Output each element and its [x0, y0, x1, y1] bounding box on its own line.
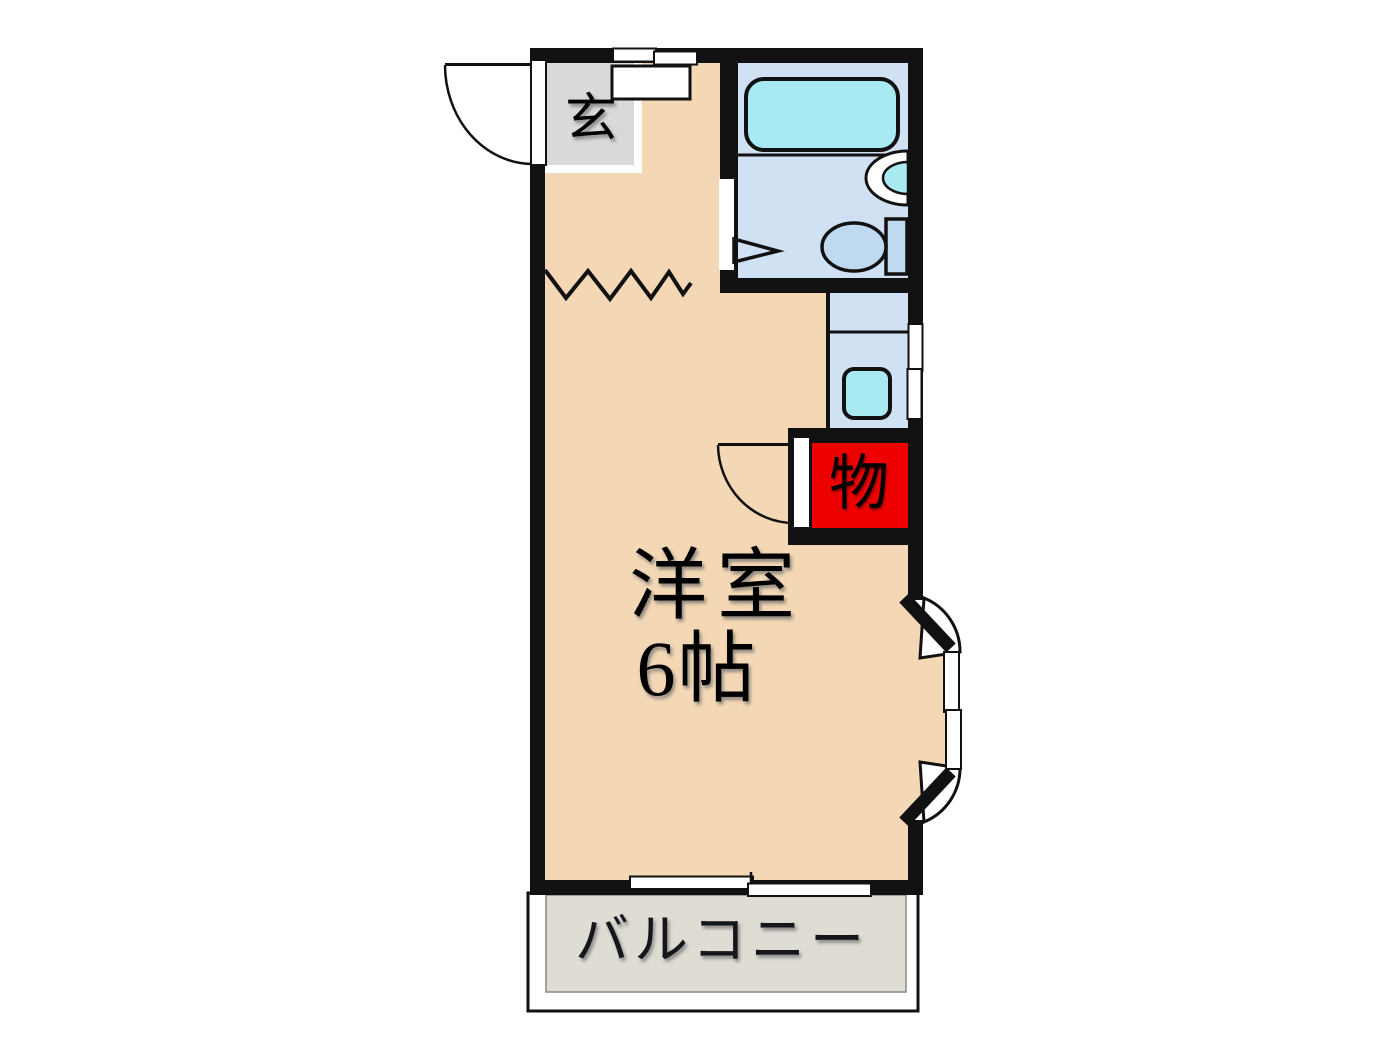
front-door-leaf — [531, 60, 546, 165]
laundry-area — [826, 293, 908, 428]
front-door — [445, 60, 546, 165]
closet-label: 物 — [811, 453, 907, 516]
front-door-swing-arc — [445, 65, 531, 164]
top-window-pane-right — [654, 52, 697, 65]
balcony-sliding-pane-left — [630, 877, 753, 890]
closet-door-leaf — [793, 437, 810, 528]
bay-window-pane-lower — [946, 710, 961, 769]
main-room-size: 6帖 — [577, 628, 817, 710]
laundry-left-line — [826, 293, 830, 428]
right-window-pane-upper — [909, 324, 923, 371]
bay-window-pane-upper — [944, 652, 959, 712]
bathroom — [719, 63, 923, 293]
bathroom-bottom-wall — [720, 278, 923, 293]
wall-top — [530, 48, 923, 63]
washing-machine — [844, 369, 890, 418]
main-room-name: 洋室 — [597, 545, 837, 627]
wall-left — [530, 48, 545, 895]
right-window-pane-lower — [908, 369, 922, 419]
toilet-tank — [886, 219, 907, 274]
top-window-pane-left — [613, 49, 656, 62]
floor-plan-drawing — [0, 0, 1400, 1050]
bay-window — [904, 598, 961, 822]
bathroom-door-opening — [719, 179, 734, 270]
bathtub — [746, 79, 898, 150]
balcony-sliding-pane-right — [748, 884, 871, 897]
toilet-bowl — [822, 223, 886, 271]
entrance-label: 玄 — [558, 93, 624, 148]
balcony-label: バルコニー — [520, 912, 924, 969]
floor-plan: 玄 洋室 6帖 物 バルコニー — [0, 0, 1400, 1050]
